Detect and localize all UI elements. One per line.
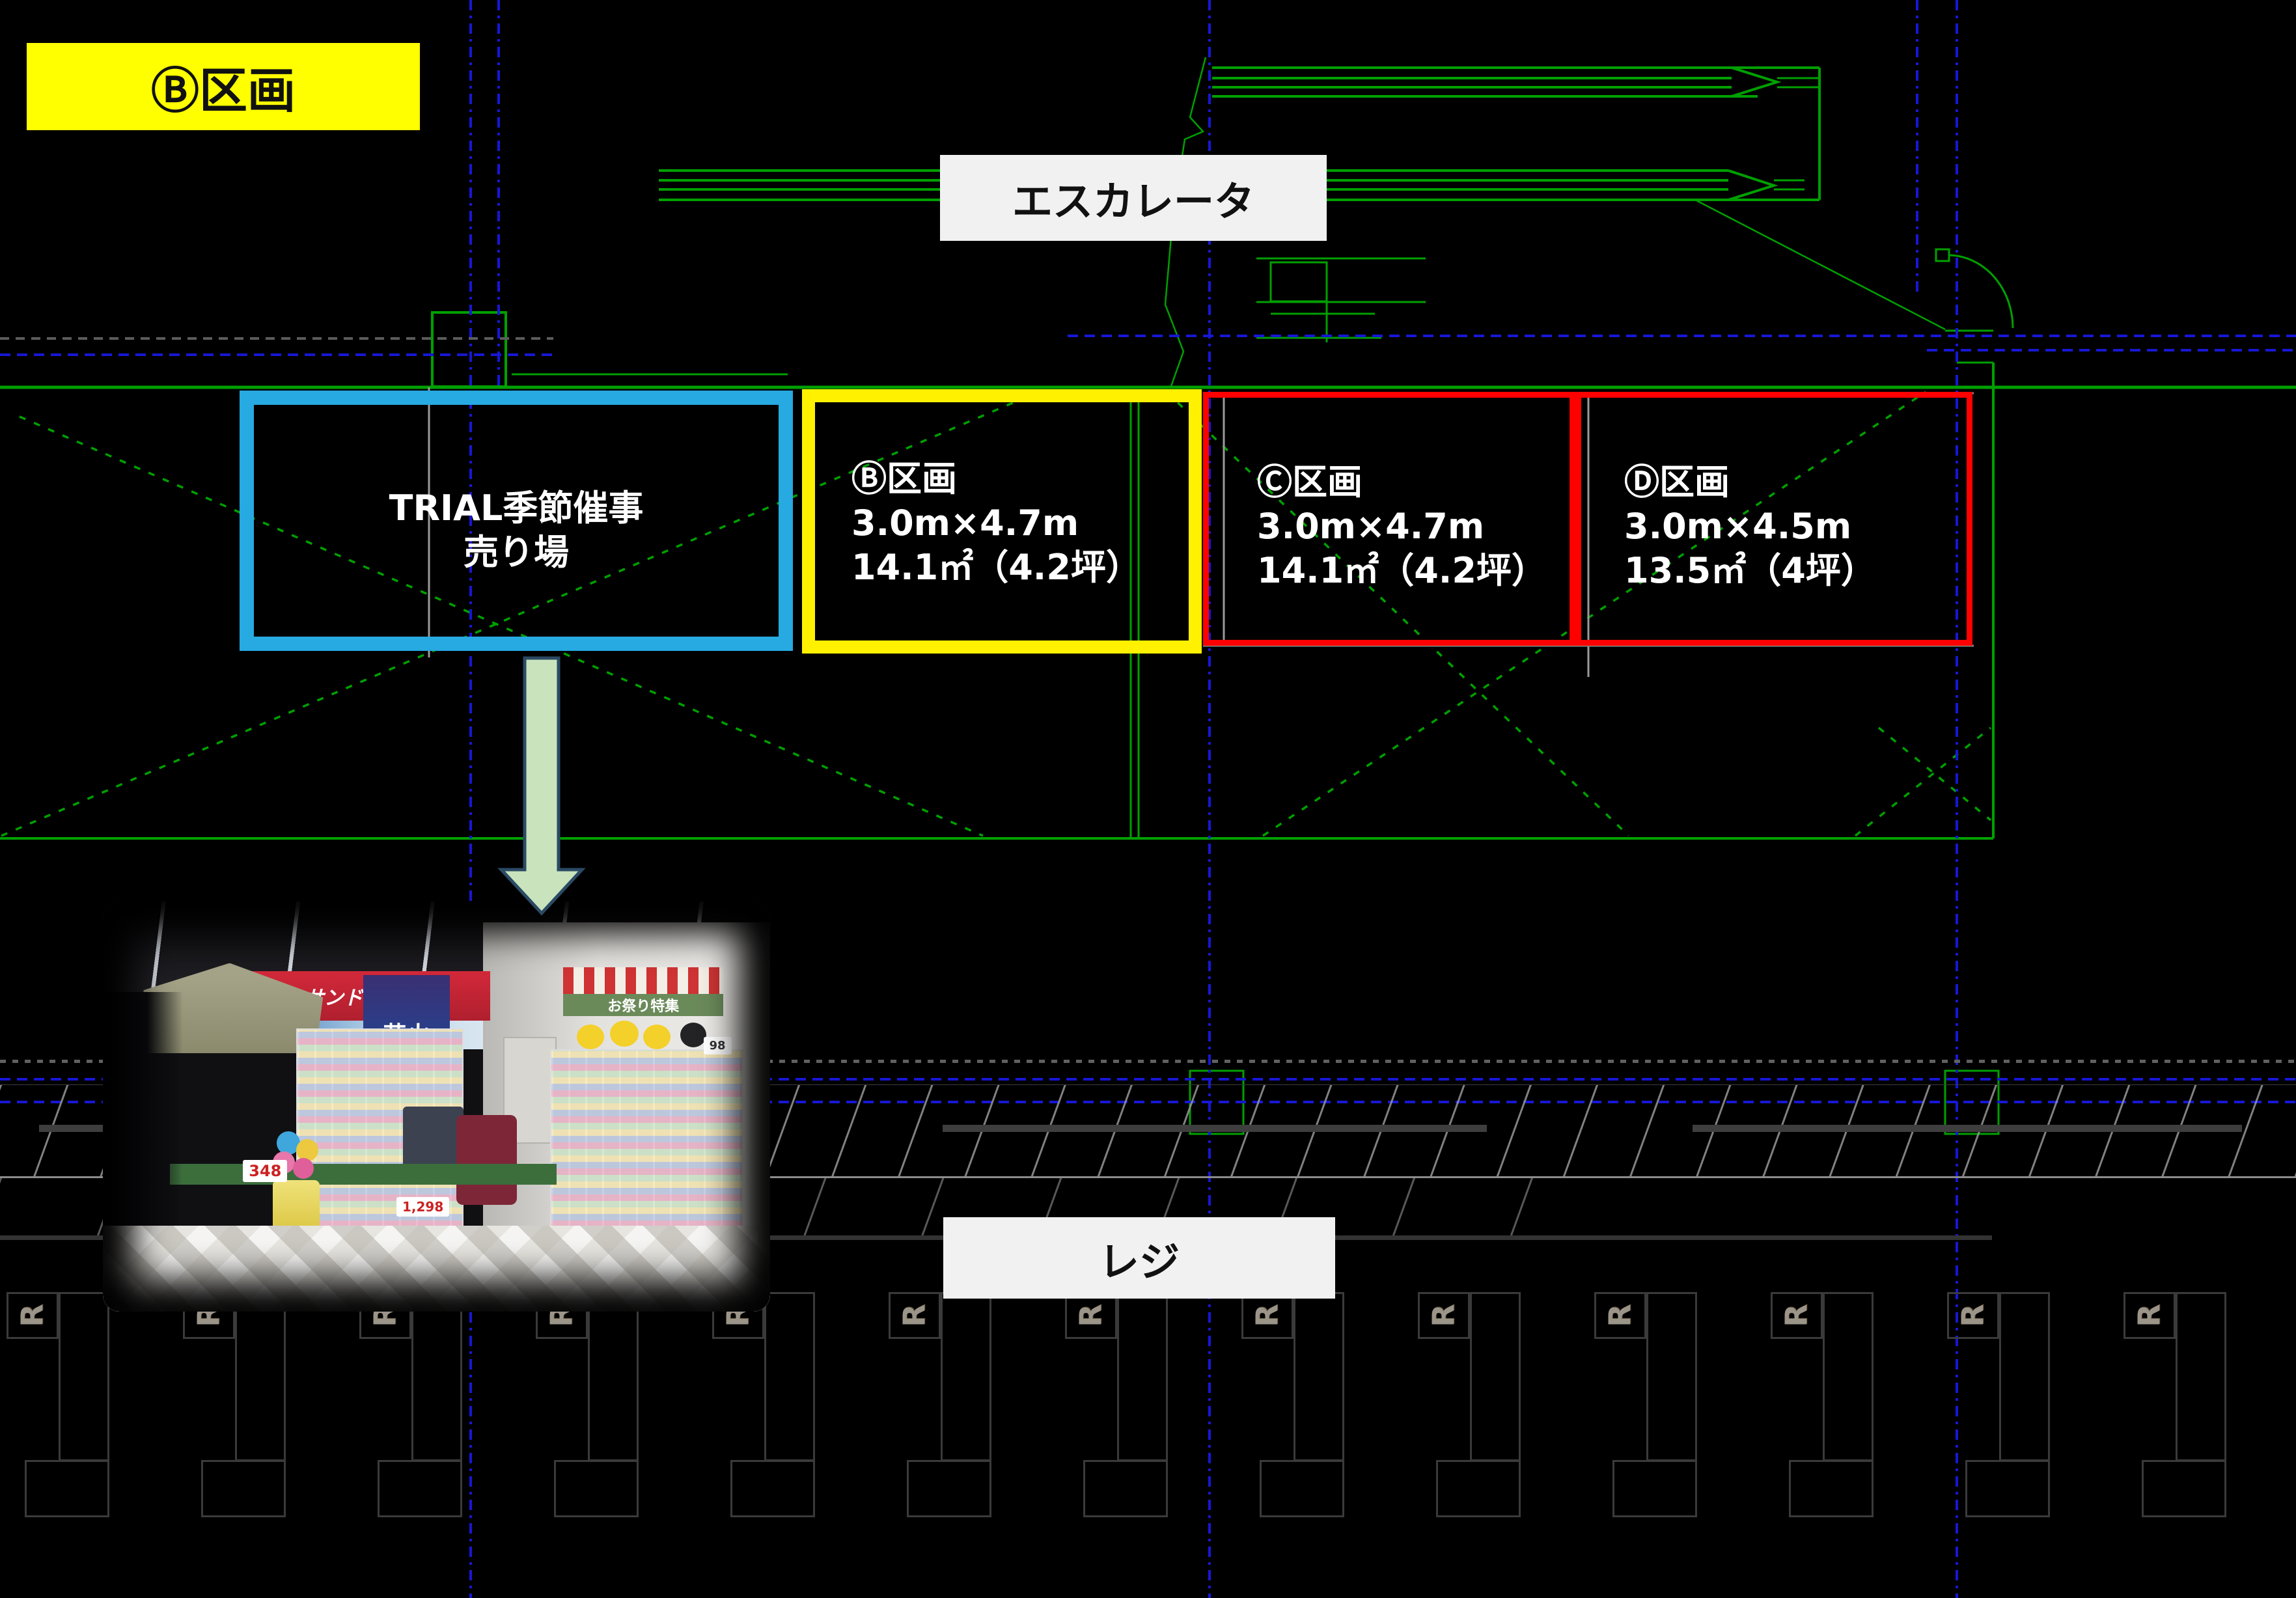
- register-counter: [1823, 1292, 1874, 1461]
- register-counter: [2176, 1292, 2226, 1461]
- register-unit: R: [1065, 1292, 1169, 1520]
- section-box-trial: TRIAL季節催事 売り場: [240, 391, 793, 651]
- register-unit: R: [712, 1292, 816, 1520]
- register-counter: [1646, 1292, 1697, 1461]
- register-r-mark: R: [1779, 1304, 1814, 1327]
- register-base: [730, 1460, 815, 1517]
- register-unit: R: [536, 1292, 640, 1520]
- photo-checkered-floor: [103, 1226, 770, 1312]
- photo-festival-banner: お祭り特集: [563, 967, 723, 1017]
- register-box: R: [1947, 1292, 1999, 1339]
- counter-segment: [943, 1125, 1487, 1132]
- section-label: 13.5㎡（4坪）: [1624, 549, 1967, 593]
- register-counter: [235, 1292, 286, 1461]
- pikachu-balloon: [643, 1025, 671, 1049]
- register-box: R: [1771, 1292, 1823, 1339]
- character-balloon: [680, 1023, 706, 1047]
- price-tag: 348: [243, 1160, 287, 1182]
- register-base: [1083, 1460, 1168, 1517]
- arrow-chevron-icon: [1728, 171, 1774, 200]
- festival-banner-text: お祭り特集: [563, 994, 723, 1016]
- register-counter: [764, 1292, 815, 1461]
- store-photo: サンドラッグ 花火 お祭り特集 348 1,298 98: [103, 902, 770, 1312]
- register-unit: R: [1241, 1292, 1346, 1520]
- register-base: [378, 1460, 462, 1517]
- door-swing-arc: [1949, 255, 2013, 328]
- section-label: 14.1㎡（4.2坪）: [1257, 549, 1570, 593]
- register-counter: [1470, 1292, 1521, 1461]
- register-counter: [588, 1292, 639, 1461]
- register-base: [907, 1460, 991, 1517]
- register-unit: R: [1771, 1292, 1875, 1520]
- register-unit: R: [1594, 1292, 1698, 1520]
- register-r-mark: R: [1250, 1304, 1285, 1327]
- section-label: Ⓒ区画: [1257, 460, 1570, 504]
- register-counter: [1999, 1292, 2050, 1461]
- register-base: [1612, 1460, 1697, 1517]
- register-label: レジ: [943, 1217, 1335, 1299]
- register-base: [554, 1460, 639, 1517]
- pikachu-balloon: [610, 1021, 639, 1047]
- photo-camp-chair: [456, 1115, 516, 1205]
- register-base: [1965, 1460, 2050, 1517]
- escalator-drawing: [659, 57, 2013, 388]
- register-r-mark: R: [1426, 1304, 1461, 1327]
- register-box: R: [1241, 1292, 1293, 1339]
- grid-line-vertical: [497, 0, 500, 391]
- festival-banner-stripes: [563, 967, 723, 995]
- register-counter: [59, 1292, 109, 1461]
- section-box-d: Ⓓ区画 3.0m×4.5m 13.5㎡（4坪）: [1575, 392, 1972, 646]
- register-unit: R: [7, 1292, 111, 1520]
- register-unit: R: [183, 1292, 287, 1520]
- floorplan-slide: RRRRRRRRRRRRR サンドラッグ 花火 お祭り特集: [0, 0, 2296, 1598]
- register-box: R: [1418, 1292, 1470, 1339]
- register-base: [1789, 1460, 1874, 1517]
- register-base: [2142, 1460, 2226, 1517]
- register-r-mark: R: [1956, 1304, 1991, 1327]
- register-r-mark: R: [897, 1304, 932, 1327]
- register-base: [1436, 1460, 1521, 1517]
- register-counter: [1293, 1292, 1344, 1461]
- section-label: 3.0m×4.7m: [851, 501, 1189, 545]
- register-counter: [941, 1292, 991, 1461]
- register-box: R: [1594, 1292, 1646, 1339]
- grid-line-horizontal: [0, 337, 553, 340]
- register-base: [25, 1460, 109, 1517]
- register-unit: R: [2123, 1292, 2228, 1520]
- register-unit: R: [1418, 1292, 1522, 1520]
- register-unit: R: [359, 1292, 463, 1520]
- pikachu-balloon: [577, 1025, 604, 1049]
- register-box: R: [1065, 1292, 1117, 1339]
- slide-title-tag: Ⓑ区画: [27, 43, 420, 130]
- register-r-mark: R: [1603, 1304, 1638, 1327]
- photo-merchandise: [403, 1107, 463, 1172]
- register-counter: [1117, 1292, 1168, 1461]
- section-label: TRIAL季節催事: [389, 486, 644, 530]
- register-box: R: [7, 1292, 59, 1339]
- section-label: Ⓑ区画: [851, 457, 1189, 501]
- register-r-mark: R: [2132, 1304, 2167, 1327]
- register-r-mark: R: [15, 1304, 50, 1327]
- section-box-b: Ⓑ区画 3.0m×4.7m 14.1㎡（4.2坪）: [802, 389, 1202, 654]
- photo-festival-rack: [550, 1049, 743, 1254]
- balloon: [293, 1158, 314, 1179]
- arrow-chevron-icon: [1732, 68, 1777, 96]
- grid-line-horizontal: [0, 353, 553, 356]
- section-label: Ⓓ区画: [1624, 460, 1967, 504]
- section-label: 売り場: [463, 530, 569, 575]
- price-tag: 98: [704, 1037, 732, 1054]
- section-label: 14.1㎡（4.2坪）: [851, 545, 1189, 590]
- register-unit: R: [889, 1292, 993, 1520]
- grid-line-horizontal: [1068, 335, 2296, 337]
- register-box: R: [2123, 1292, 2176, 1339]
- escalator-label: エスカレータ: [940, 155, 1327, 241]
- photo-dark-depth: [103, 992, 183, 1238]
- price-tag: 1,298: [396, 1197, 449, 1217]
- callout-arrow-icon: [495, 656, 588, 916]
- register-base: [1260, 1460, 1344, 1517]
- section-label: 3.0m×4.5m: [1624, 504, 1967, 549]
- section-box-c: Ⓒ区画 3.0m×4.7m 14.1㎡（4.2坪）: [1203, 392, 1575, 646]
- counter-segment: [1693, 1125, 2242, 1132]
- register-r-mark: R: [1073, 1304, 1109, 1327]
- grid-line-horizontal: [1927, 349, 2296, 351]
- register-box: R: [889, 1292, 941, 1339]
- grid-line-vertical: [1916, 0, 1918, 296]
- register-row: RRRRRRRRRRRRR: [0, 1292, 2296, 1520]
- section-label: 3.0m×4.7m: [1257, 504, 1570, 549]
- register-base: [201, 1460, 286, 1517]
- photo-turf-strip: [170, 1164, 557, 1185]
- register-unit: R: [1947, 1292, 2051, 1520]
- register-counter: [411, 1292, 462, 1461]
